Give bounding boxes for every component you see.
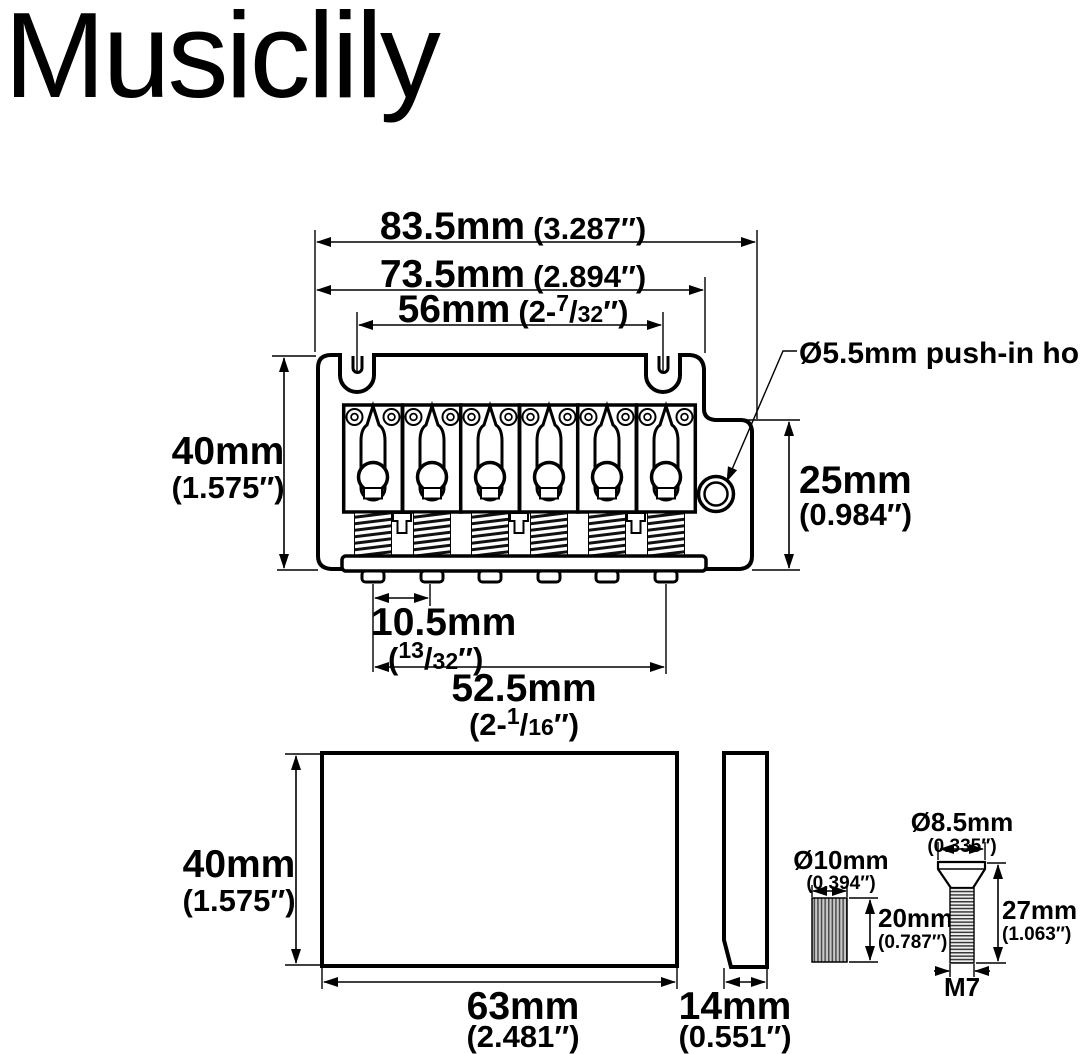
pushin-hole-note: Ø5.5mm push-in hole — [799, 337, 1080, 370]
block-front-face — [322, 753, 677, 966]
string-tab — [655, 571, 677, 582]
dim-label-block-thickness-inch: (0.551″) — [678, 1019, 791, 1054]
insert-diameter-label-mm: Ø10mm — [793, 845, 888, 875]
string-tab — [596, 571, 618, 582]
screw-length-label-inch: (1.063″) — [1002, 924, 1071, 945]
screw-thread-label: M7 — [944, 972, 980, 1002]
screw-threaded-shaft — [950, 888, 974, 963]
screw-head — [938, 862, 985, 888]
dim-label-plate-height-mm: 40mm — [172, 430, 285, 473]
dim-label-string-span-mm: 52.5mm — [451, 667, 596, 710]
dim-label-block-width-inch: (2.481″) — [466, 1019, 579, 1054]
block-front-view-drawing — [322, 753, 677, 966]
dim-label-string-spacing-mm: 10.5mm — [371, 601, 516, 644]
bridge-rear-bar — [342, 556, 706, 571]
dim-label-overall-width: 83.5mm(3.287″) — [380, 205, 646, 248]
insert-drawing: Ø10mm (0.394″) 20mm (0.787″) — [793, 845, 953, 962]
bridge-top-view-drawing — [277, 355, 800, 582]
dimension-block-thickness: 14mm (0.551″) — [678, 968, 791, 1054]
string-tab — [362, 571, 384, 582]
brand-logo: Musiclily — [4, 0, 441, 123]
insert-length-label-mm: 20mm — [878, 903, 953, 933]
screw-head-label-mm: Ø8.5mm — [911, 807, 1014, 837]
string-tab — [479, 571, 501, 582]
string-tab — [421, 571, 443, 582]
block-side-profile — [724, 753, 767, 967]
dim-label-plate-height-inch: (1.575″) — [171, 470, 284, 505]
string-tab — [538, 571, 560, 582]
dimension-block-width: 63mm (2.481″) — [322, 968, 677, 1054]
dim-label-right-height-mm: 25mm — [799, 459, 912, 502]
dim-label-block-height-mm: 40mm — [183, 843, 296, 886]
dimension-block-height: 40mm (1.575″) — [182, 754, 320, 965]
screw-length-label-mm: 27mm — [1002, 895, 1077, 925]
block-side-view-drawing — [724, 753, 767, 967]
dimension-string-spacing: 10.5mm (13/32″) — [371, 584, 516, 676]
knurled-insert-body — [812, 898, 847, 962]
dim-label-block-height-inch: (1.575″) — [182, 883, 295, 918]
dimension-plate-height: 40mm (1.575″) — [171, 356, 316, 568]
insert-length-label-inch: (0.787″) — [878, 932, 947, 953]
product-dimension-diagram: Musiclily — [0, 0, 1080, 1054]
dimension-plate-width: 73.5mm(2.894″) — [317, 253, 705, 353]
dim-label-string-span-inch: (2-1/16″) — [469, 703, 579, 742]
dim-label-right-height-inch: (0.984″) — [799, 497, 912, 532]
